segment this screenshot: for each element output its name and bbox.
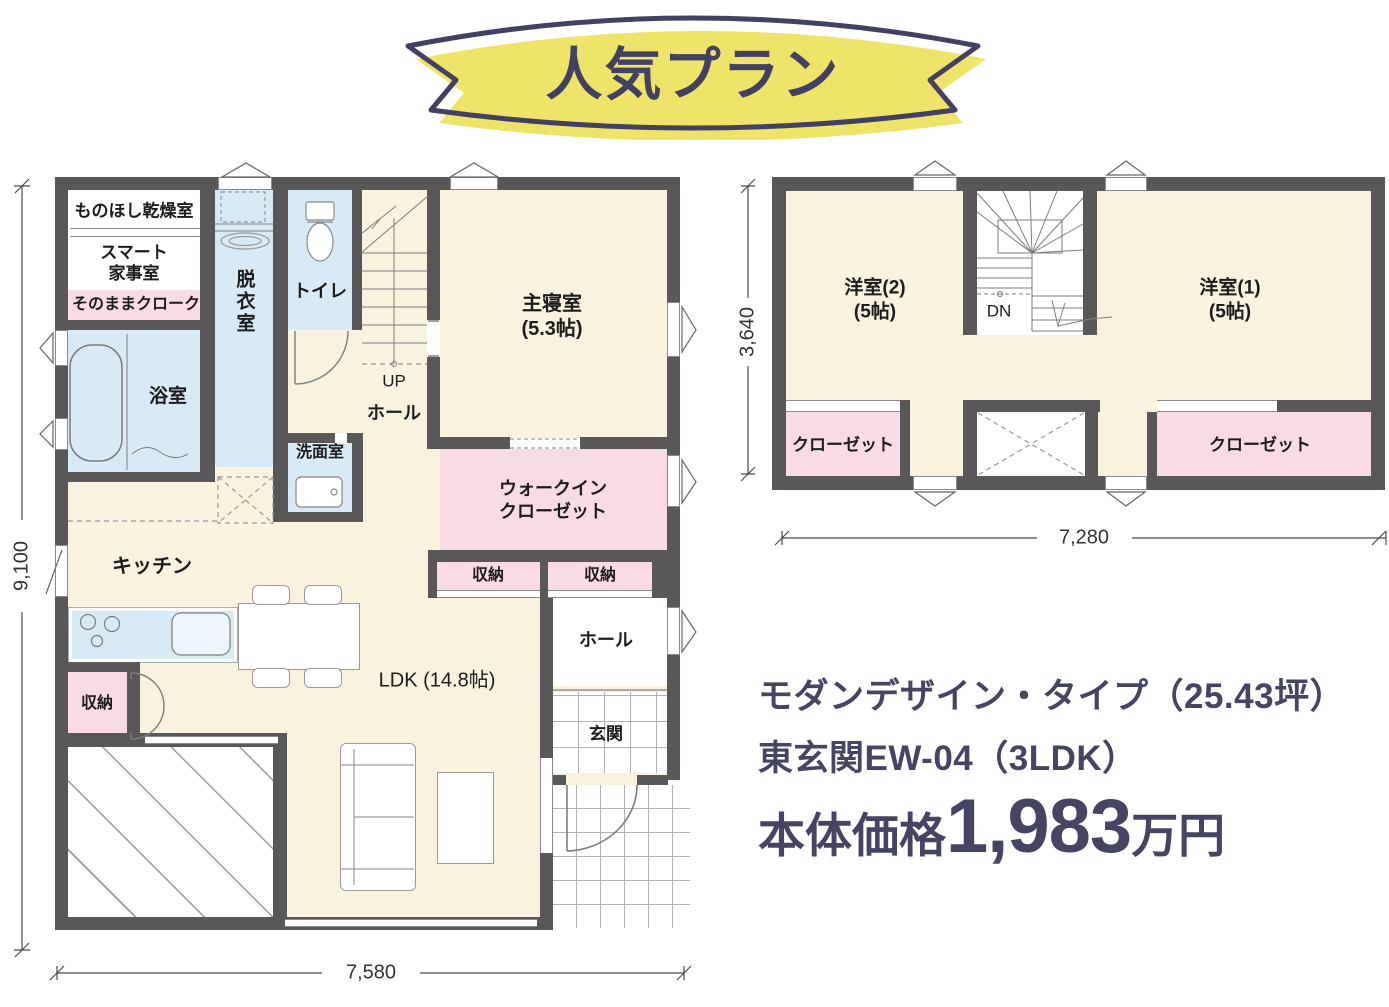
wall [957,177,1105,191]
chair [304,668,342,688]
label-storage-b: 収納 [584,566,616,586]
wall [652,562,667,598]
window [55,330,68,366]
sliding-window [145,736,278,744]
wall [1371,177,1385,490]
price-line: 本体価格 1,983 万円 [758,783,1345,870]
sliding-window [285,919,537,927]
banner-label: 人気プラン [546,43,841,107]
wall [637,775,668,785]
wall [427,357,440,449]
window [667,302,680,357]
window [218,177,272,190]
window [667,607,680,655]
label-up: UP [382,370,406,391]
wall [352,188,362,330]
chair [252,585,290,605]
plan-type: モダンデザイン・タイプ（25.43坪） [758,668,1345,719]
window [55,418,68,450]
window [1105,476,1147,490]
wall [667,507,680,607]
wall [127,672,140,733]
label-room1: 洋室(1) (5帖) [1199,276,1260,324]
wall [540,593,553,758]
window [55,545,68,597]
wall [428,550,667,562]
wall [347,433,363,443]
plan-code: 東玄関EW-04（3LDK） [758,730,1345,781]
wall [957,476,1105,490]
wall [900,400,910,476]
dim-3640: 3,640 [737,301,760,363]
sofa [340,743,416,891]
price-value: 1,983 [946,783,1131,870]
closet-door [786,400,900,412]
wall [667,655,680,780]
wall [68,662,140,672]
sliding-door [540,758,553,853]
wall [667,177,680,302]
window [1105,177,1147,191]
label-hall-lower: ホール [579,629,633,652]
plan-info: モダンデザイン・タイプ（25.43坪） 東玄関EW-04（3LDK） 本体価格 … [758,668,1345,870]
price-label: 本体価格 [758,797,946,866]
label-storage-a: 収納 [472,566,504,586]
sliding-door [548,590,652,598]
label-senmen: 洗面室 [296,443,344,463]
wall [352,443,363,522]
wall [440,437,510,449]
label-cloak: そのままクローク [72,295,200,315]
wall [963,400,1100,412]
label-bedroom: 主寝室 (5.3帖) [521,292,582,342]
wall [540,853,553,930]
wall [200,188,215,482]
window [913,177,957,191]
label-genkan: 玄関 [589,723,623,744]
label-smart-kaji: スマート 家事室 [100,242,168,285]
dim-7280: 7,280 [1053,527,1115,550]
kitchen-counter [68,607,238,663]
wall [498,177,680,190]
wall [273,433,335,443]
ribbon-icon: 人気プラン [393,4,993,140]
terrace-hatch [68,747,273,917]
wall [1147,476,1385,490]
sliding-door [437,590,540,598]
wall [273,747,287,917]
wall [963,191,977,335]
wall [1277,400,1371,412]
label-kitchen: キッチン [112,555,192,580]
wall [667,357,680,455]
room-toilet [288,190,352,330]
label-dn: DN [987,300,1012,321]
door-opening [427,320,440,357]
label-ldk: LDK (14.8帖) [379,669,496,694]
chair [252,668,290,688]
wall [68,320,200,330]
wall [55,177,68,330]
wall [580,437,667,449]
dim-9100: 9,100 [11,535,34,597]
door-opening [335,433,347,443]
label-drying-room: ものほし乾燥室 [75,200,194,221]
dining-table [238,603,360,670]
wall [68,472,200,482]
window [913,476,957,490]
wall [55,597,68,930]
label-closet-left: クローゼット [792,434,894,455]
window-band [70,228,200,237]
label-room2: 洋室(2) (5帖) [844,276,905,324]
open-wall [510,438,580,449]
wall [273,188,288,522]
wall [55,177,218,190]
wall [55,450,68,545]
wall [772,177,786,490]
wall [427,188,440,320]
wall [1083,191,1097,335]
void-box [977,412,1085,476]
wall [428,562,437,598]
wall [1147,412,1157,476]
window [450,177,498,190]
wall [55,366,68,418]
wall [1085,412,1098,476]
wall [273,512,363,522]
label-toilet: トイレ [293,280,347,303]
label-storage-bl: 収納 [81,694,113,714]
wall [772,476,913,490]
label-bath: 浴室 [149,385,187,409]
window [667,455,680,507]
room-porch [553,785,690,928]
wall [963,412,977,476]
floorplan-ad: 人気プラン [0,0,1389,1007]
price-unit: 万円 [1131,797,1225,866]
label-closet-right: クローゼット [1209,434,1311,455]
wall [772,177,913,191]
dim-7580: 7,580 [340,962,402,985]
wall [1147,177,1385,191]
coffee-table [437,772,494,864]
chair [304,585,342,605]
label-hall-upper: ホール [367,402,421,425]
popular-plan-banner: 人気プラン [393,4,993,140]
label-datsui: 脱衣室 [231,269,258,335]
label-wic: ウォークイン クローゼット [499,478,607,523]
closet-door [1157,400,1277,412]
